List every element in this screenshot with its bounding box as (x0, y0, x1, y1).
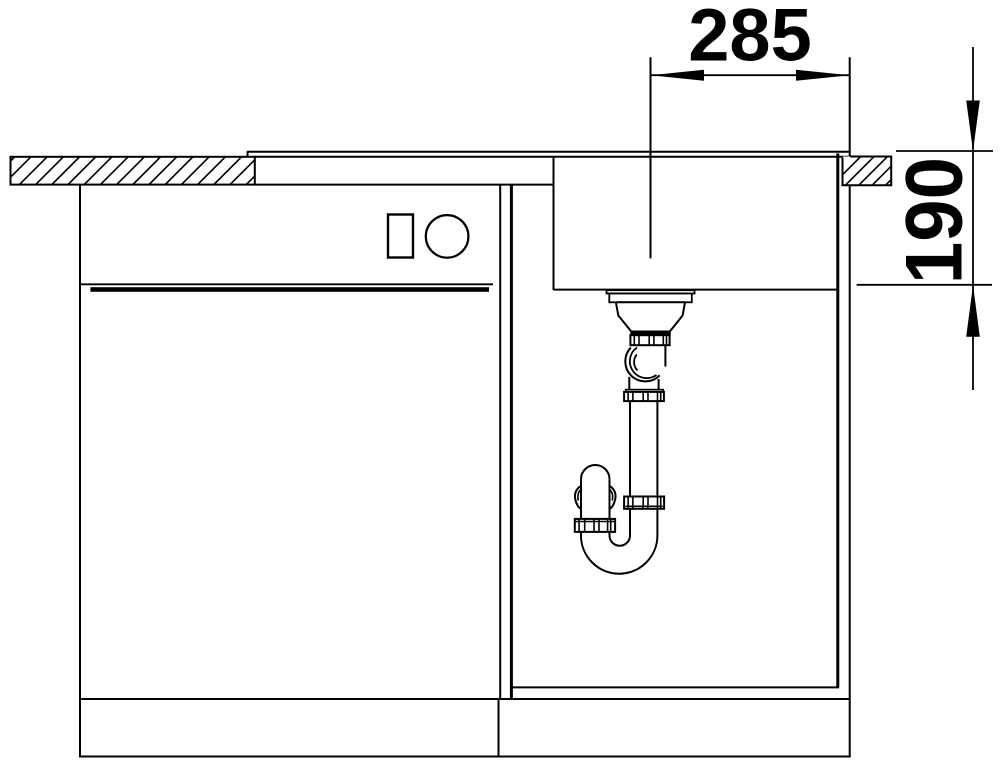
svg-text:190: 190 (888, 157, 979, 284)
svg-text:285: 285 (688, 0, 811, 77)
